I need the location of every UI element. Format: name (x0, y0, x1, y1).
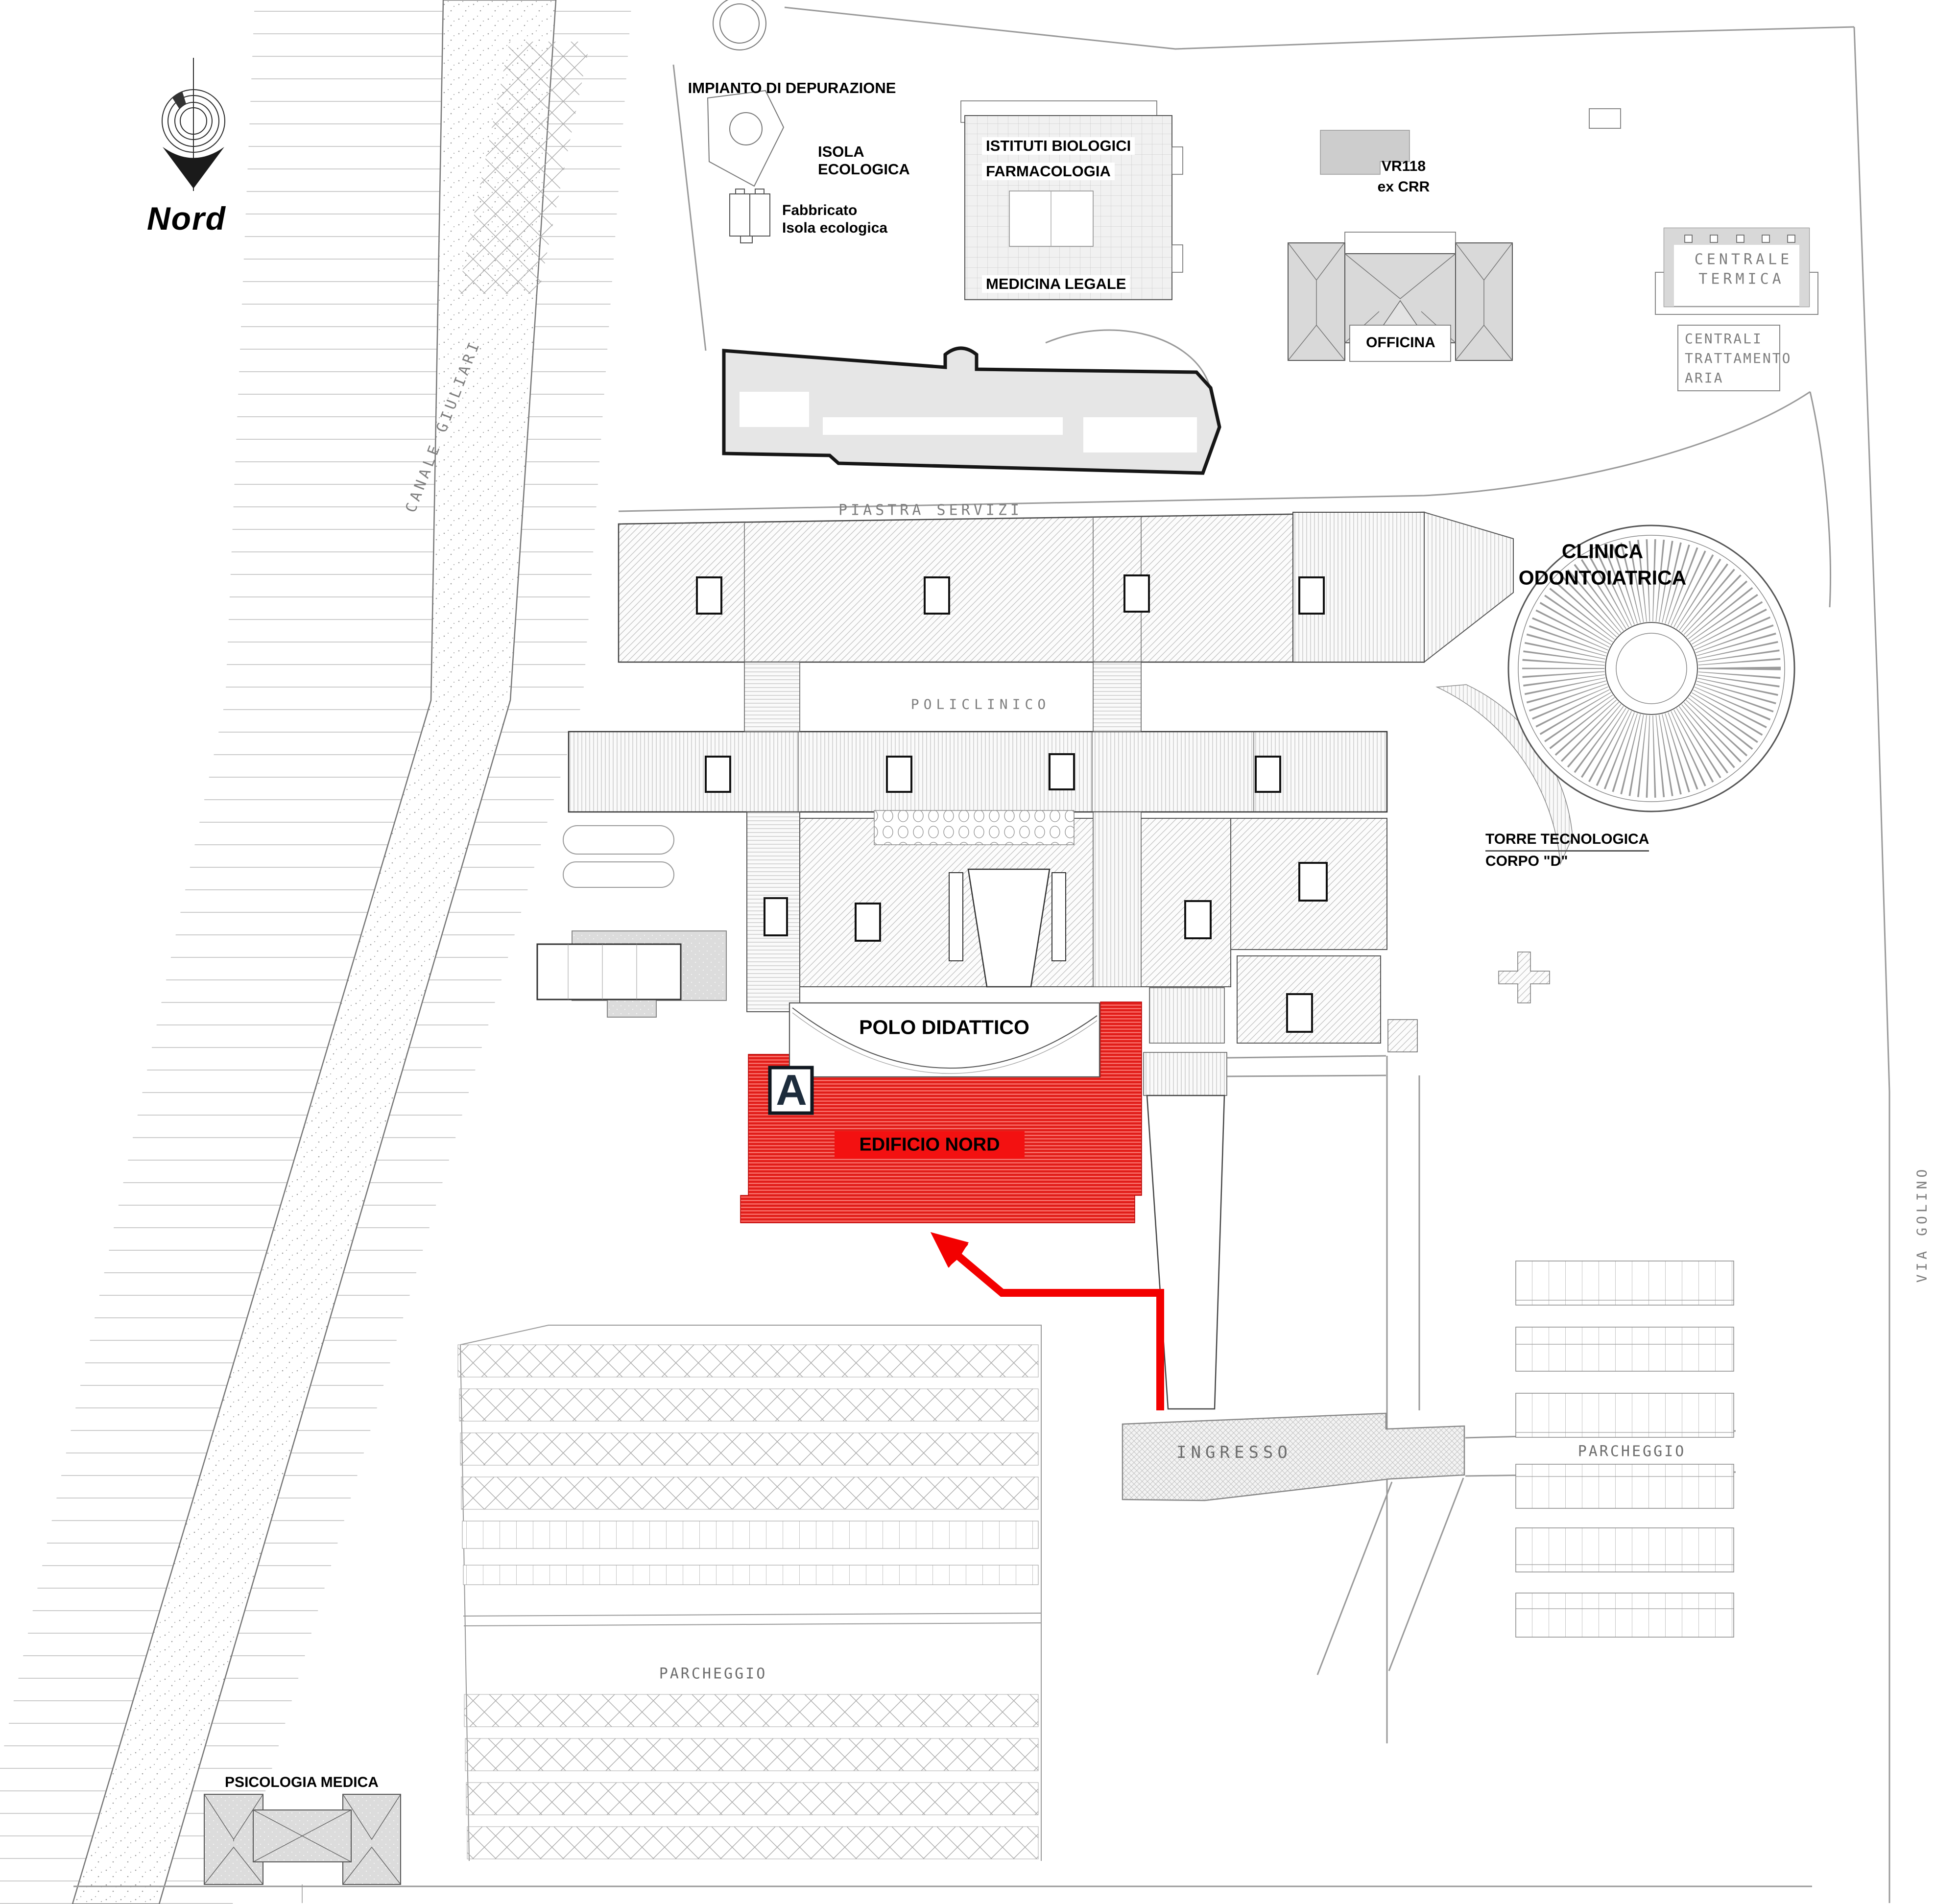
centrali-line1: CENTRALI (1685, 329, 1792, 349)
label-piastra-servizi: PIASTRA SERVIZI (838, 502, 1023, 519)
label-via-golino: VIA GOLINO (1914, 1166, 1930, 1283)
parking-south (458, 1325, 1041, 1861)
compass-icon (162, 58, 225, 191)
label-psicologia-medica: PSICOLOGIA MEDICA (225, 1774, 379, 1791)
polo-didattico-court (789, 1003, 1099, 1077)
label-torre-tecnologica: TORRE TECNOLOGICA CORPO "D" (1485, 830, 1649, 871)
label-clinica-1: CLINICA (1562, 540, 1643, 563)
cross-building (1499, 952, 1550, 1003)
label-policlinico: POLICLINICO (911, 696, 1050, 713)
label-fabbricato: Fabbricato Isola ecologica (782, 202, 887, 237)
torre-line1: TORRE TECNOLOGICA (1485, 830, 1649, 852)
label-vr118: VR118 (1382, 158, 1426, 175)
isola-line2: ECOLOGICA (818, 161, 910, 178)
label-farmacologia: FARMACOLOGIA (982, 163, 1115, 180)
label-officina: OFFICINA (1366, 334, 1435, 351)
route-arrow (931, 1232, 1160, 1410)
label-clinica-2: ODONTOIATRICA (1519, 567, 1686, 590)
label-impianto-depurazione: IMPIANTO DI DEPURAZIONE (688, 79, 896, 97)
centrali-line3: ARIA (1685, 368, 1792, 388)
piastra-servizi-band (619, 512, 1513, 662)
piastra-servizi-upper-building (724, 348, 1219, 473)
marker-a-letter: A (776, 1065, 807, 1115)
policlinico-band (569, 662, 1387, 812)
isola-line1: ISOLA (818, 143, 910, 161)
label-vr118-excrr: ex CRR (1378, 179, 1430, 195)
label-edificio-nord: EDIFICIO NORD (859, 1135, 1000, 1156)
site-plan-drawing (0, 0, 1959, 1904)
label-ingresso: INGRESSO (1176, 1443, 1292, 1462)
west-gray-buildings (537, 826, 726, 1017)
label-polo-didattico: POLO DIDATTICO (859, 1016, 1029, 1039)
label-centrali-aria: CENTRALI TRATTAMENTO ARIA (1685, 329, 1792, 388)
small-annex-box (1589, 109, 1621, 128)
compass-nord-label: Nord (147, 200, 226, 237)
label-centrale-termica-2: TERMICA (1698, 271, 1784, 288)
label-medicina-legale: MEDICINA LEGALE (982, 275, 1130, 293)
ingresso-band (1123, 1413, 1464, 1500)
torre-line2: CORPO "D" (1485, 852, 1649, 871)
fabbricato-line2: Isola ecologica (782, 219, 887, 237)
campus-site-map: Nord IMPIANTO DI DEPURAZIONE ISOLA ECOLO… (0, 0, 1959, 1904)
istituti-biologici-building (961, 101, 1183, 300)
fabbricato-line1: Fabbricato (782, 202, 887, 219)
centrali-line2: TRATTAMENTO (1685, 349, 1792, 368)
label-parcheggio-east: PARCHEGGIO (1578, 1443, 1686, 1460)
label-istituti-biologici: ISTITUTI BIOLOGICI (982, 137, 1135, 155)
fabbricato-isola-ecologica-building (730, 189, 770, 243)
label-isola-ecologica: ISOLA ECOLOGICA (818, 143, 910, 178)
label-centrale-termica-1: CENTRALE (1695, 251, 1793, 268)
label-parcheggio-south: PARCHEGGIO (659, 1666, 767, 1683)
